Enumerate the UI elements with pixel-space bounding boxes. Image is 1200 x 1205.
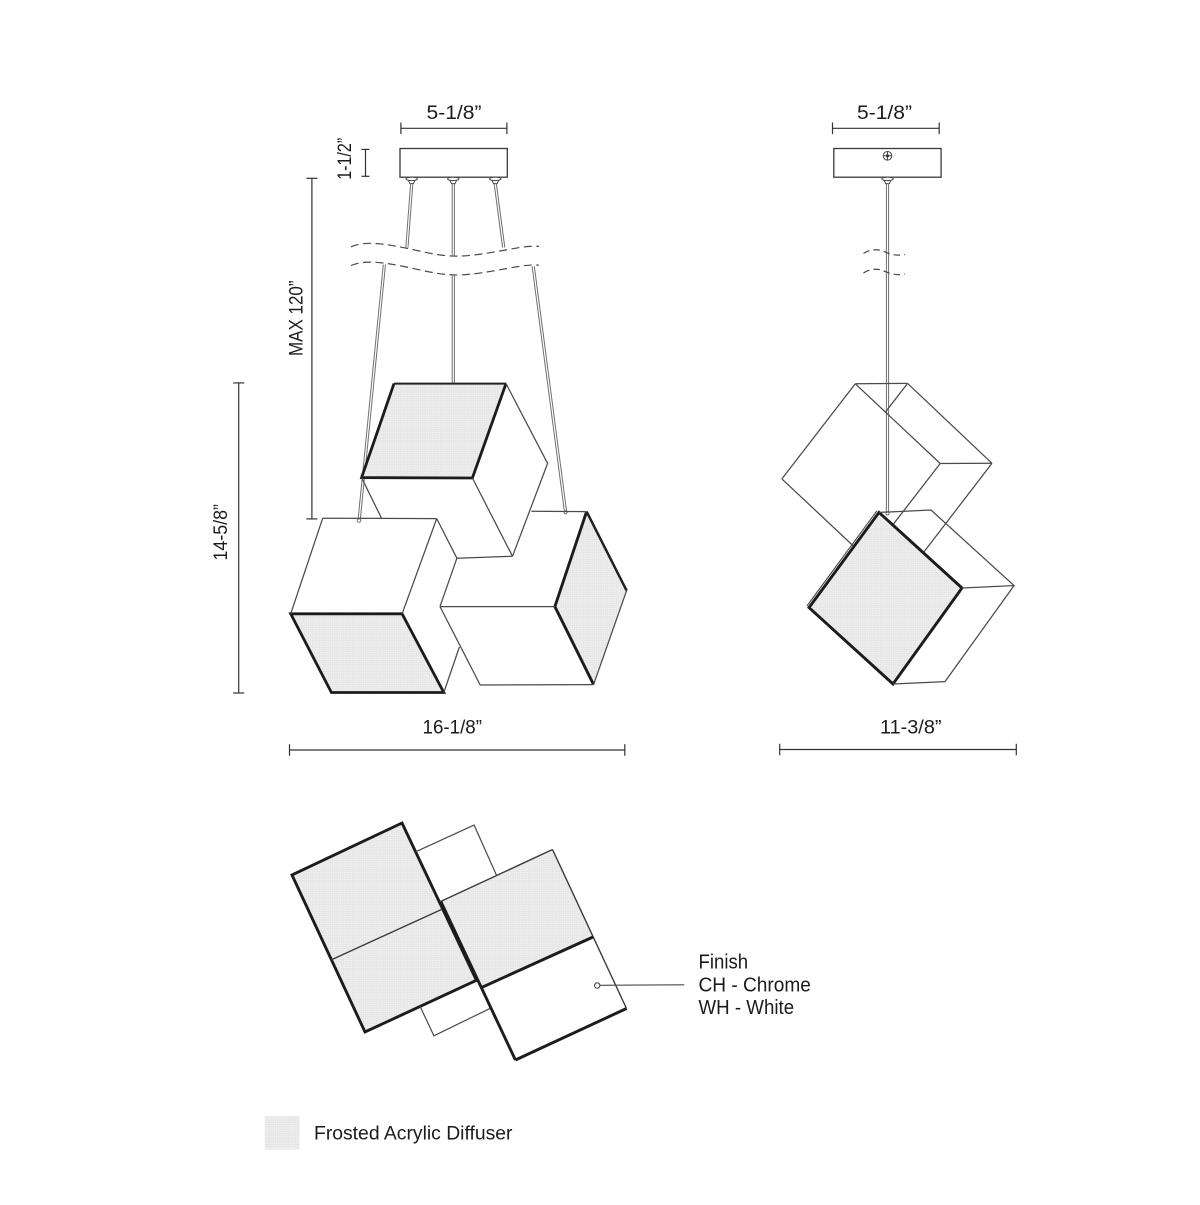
svg-text:14-5/8”: 14-5/8” [210, 504, 232, 561]
svg-text:5-1/8”: 5-1/8” [857, 102, 912, 124]
svg-text:1-1/2”: 1-1/2” [334, 138, 356, 180]
svg-text:Frosted Acrylic Diffuser: Frosted Acrylic Diffuser [314, 1124, 513, 1145]
svg-text:CH - Chrome: CH - Chrome [699, 974, 811, 996]
svg-text:Finish: Finish [699, 952, 749, 974]
svg-text:WH - White: WH - White [699, 997, 795, 1019]
svg-text:MAX 120”: MAX 120” [286, 281, 308, 357]
svg-text:11-3/8”: 11-3/8” [880, 716, 942, 738]
svg-text:16-1/8”: 16-1/8” [423, 716, 483, 738]
svg-text:5-1/8”: 5-1/8” [427, 102, 482, 124]
